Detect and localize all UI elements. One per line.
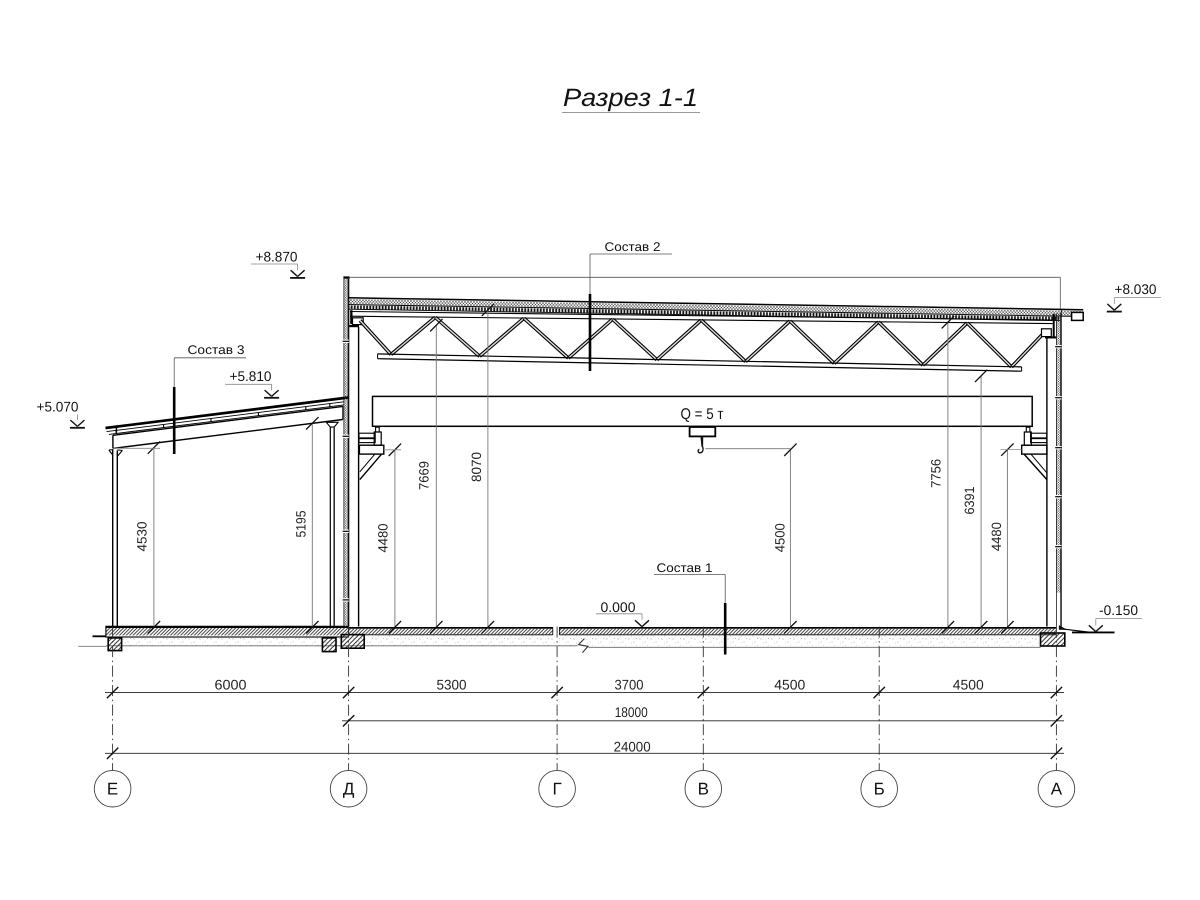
- svg-text:+8.030: +8.030: [1115, 281, 1157, 297]
- svg-text:Q = 5 т: Q = 5 т: [681, 406, 724, 423]
- svg-text:-0.150: -0.150: [1099, 602, 1138, 618]
- svg-text:А: А: [1051, 780, 1063, 799]
- svg-text:+8.870: +8.870: [256, 249, 298, 265]
- svg-text:6391: 6391: [962, 487, 977, 515]
- svg-text:Д: Д: [343, 780, 355, 799]
- svg-text:18000: 18000: [615, 704, 648, 720]
- svg-text:4480: 4480: [989, 522, 1004, 551]
- svg-text:0.000: 0.000: [601, 599, 636, 615]
- svg-text:Состав 1: Состав 1: [657, 561, 713, 575]
- svg-text:+5.070: +5.070: [37, 398, 79, 414]
- svg-text:4500: 4500: [953, 677, 984, 693]
- svg-text:В: В: [698, 780, 709, 799]
- svg-text:8070: 8070: [469, 452, 484, 482]
- svg-text:7669: 7669: [417, 461, 432, 490]
- svg-text:3700: 3700: [615, 677, 644, 693]
- svg-text:Г: Г: [552, 780, 561, 799]
- svg-text:6000: 6000: [215, 677, 247, 693]
- svg-text:5300: 5300: [437, 677, 467, 693]
- svg-text:4500: 4500: [774, 677, 805, 693]
- svg-text:Состав 2: Состав 2: [605, 240, 661, 254]
- svg-text:4500: 4500: [772, 523, 787, 552]
- svg-text:5195: 5195: [294, 511, 309, 538]
- svg-text:+5.810: +5.810: [230, 368, 272, 384]
- svg-text:4480: 4480: [376, 524, 391, 553]
- svg-text:7756: 7756: [929, 459, 944, 488]
- svg-text:Состав 3: Состав 3: [188, 343, 245, 357]
- svg-text:4530: 4530: [134, 522, 149, 552]
- svg-text:Разрез 1-1: Разрез 1-1: [563, 84, 698, 112]
- svg-text:24000: 24000: [614, 738, 651, 754]
- svg-text:Б: Б: [874, 780, 885, 799]
- svg-text:Е: Е: [107, 780, 118, 799]
